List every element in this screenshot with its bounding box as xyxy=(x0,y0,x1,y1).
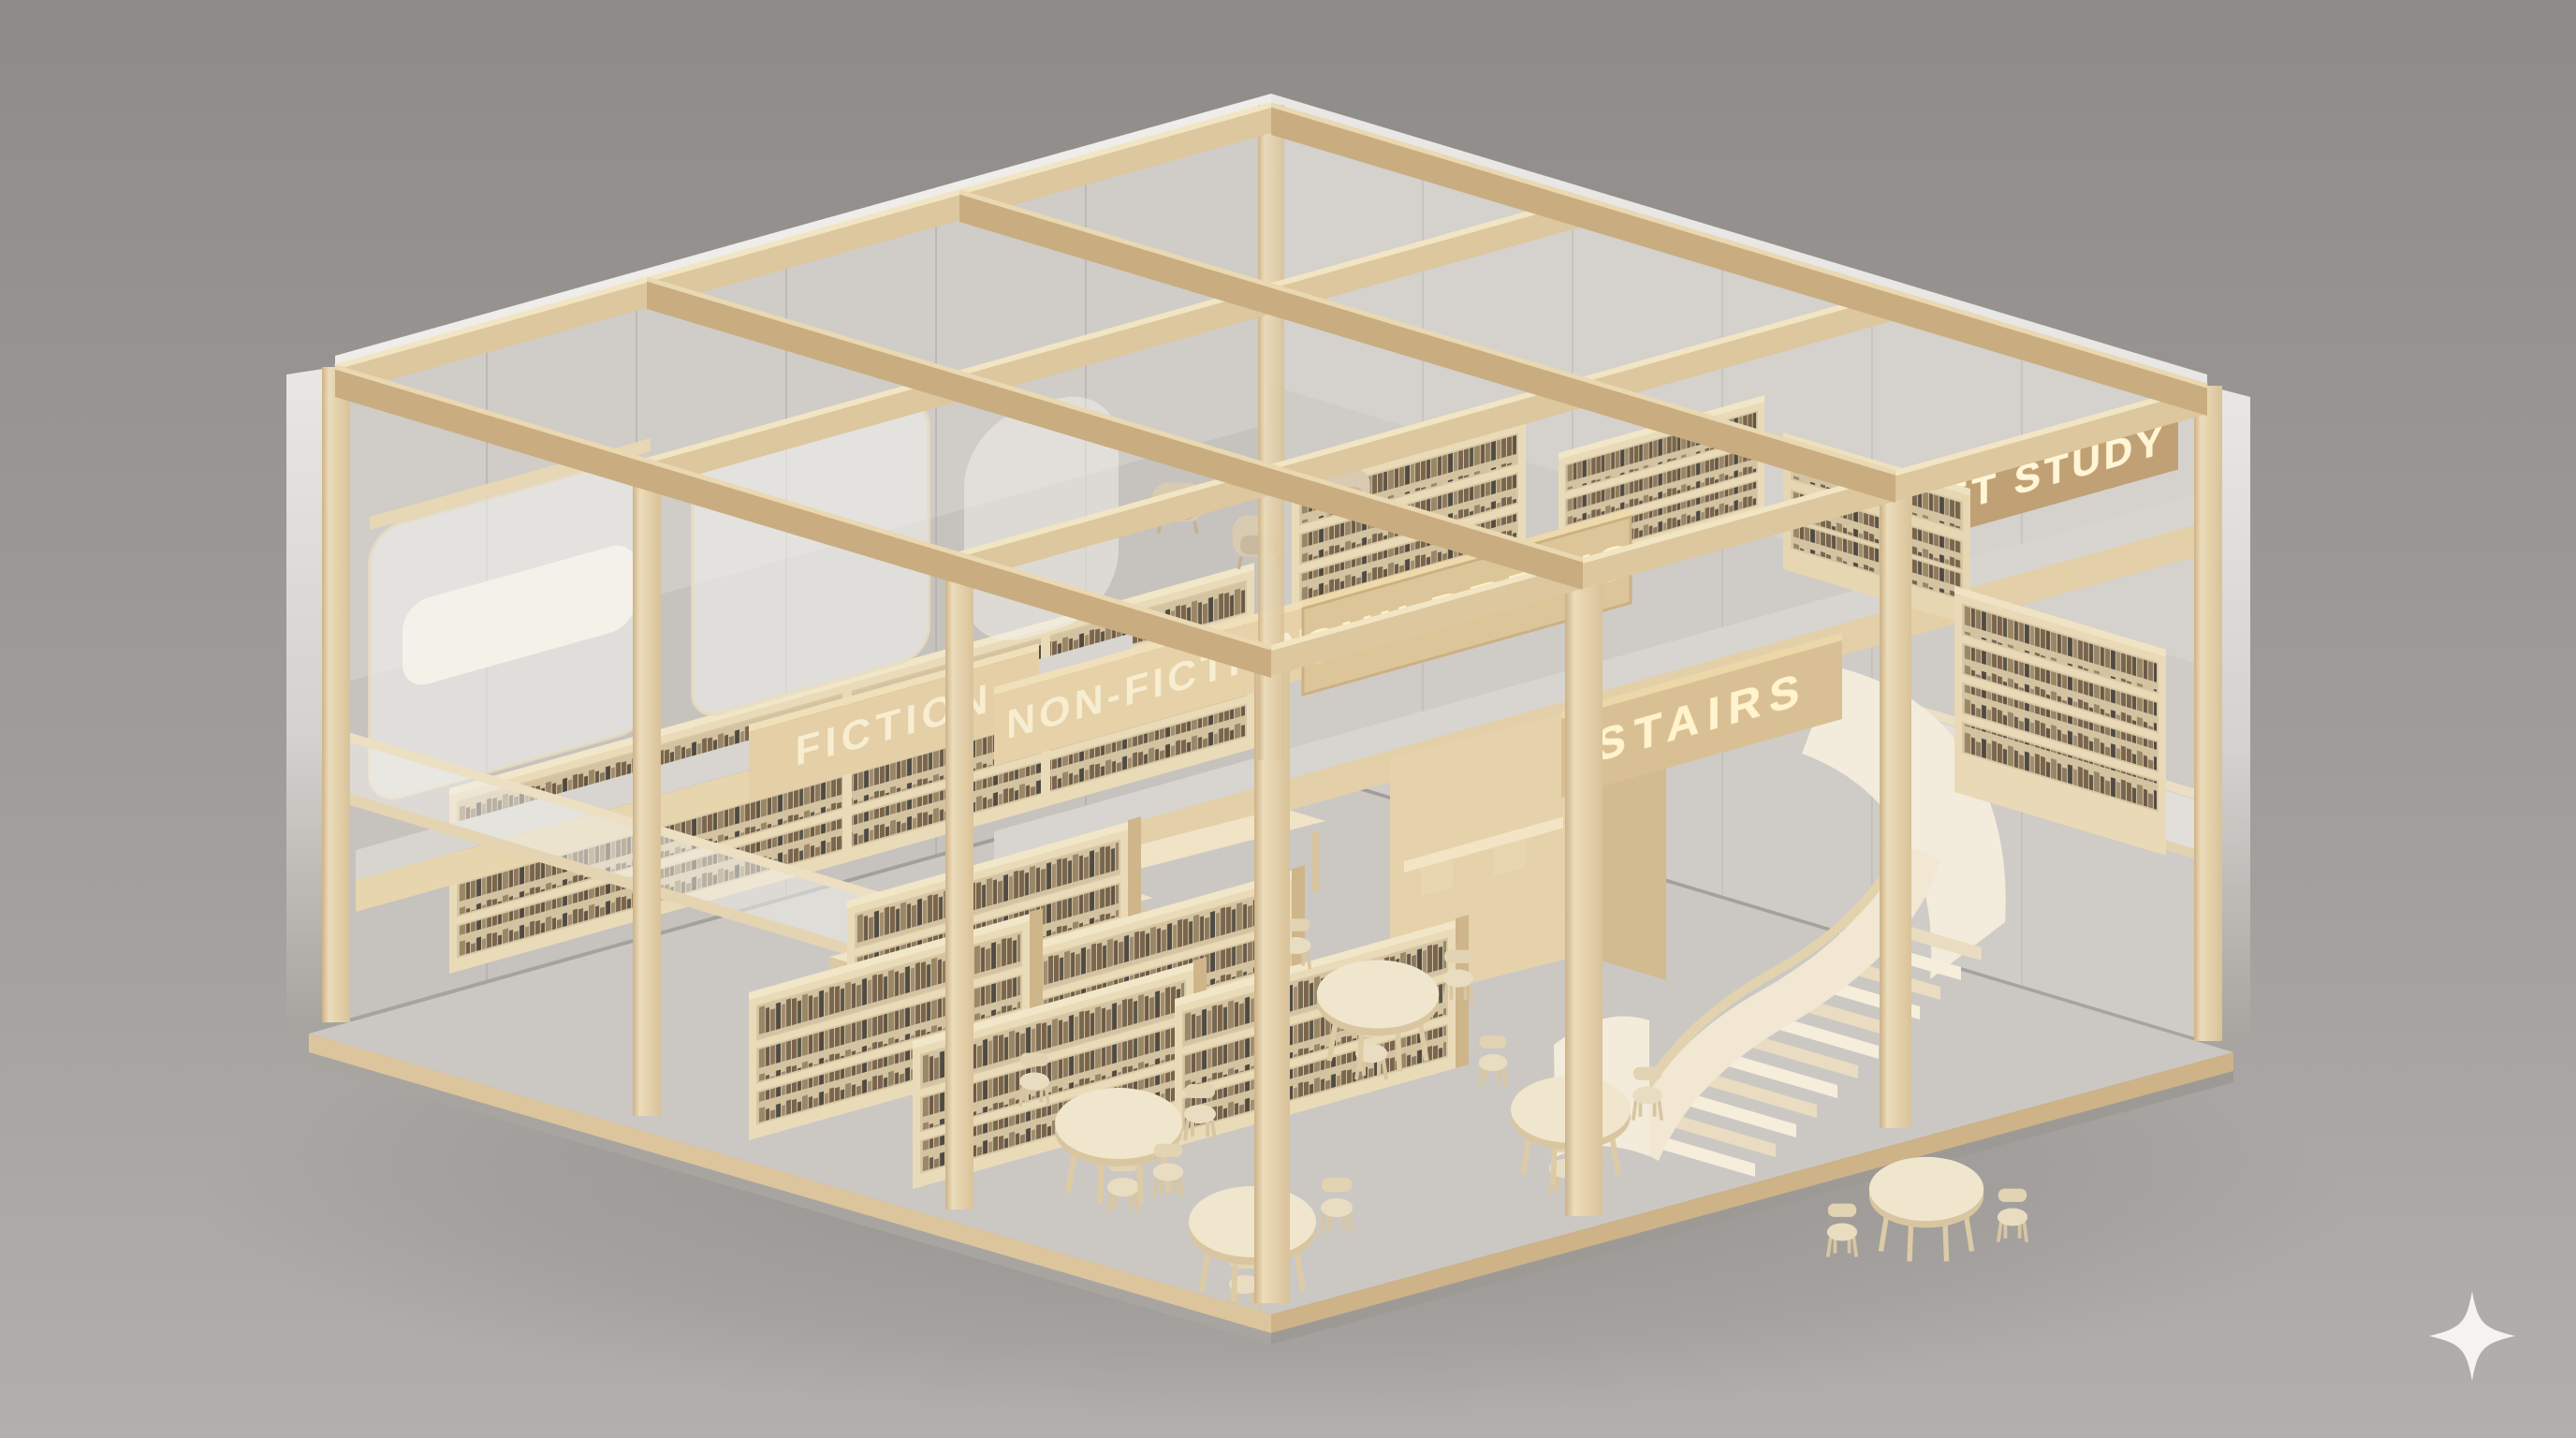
rendered-scene: QUIET STUDY xyxy=(0,0,2576,1438)
library-model-illustration: QUIET STUDY xyxy=(0,0,2576,1438)
